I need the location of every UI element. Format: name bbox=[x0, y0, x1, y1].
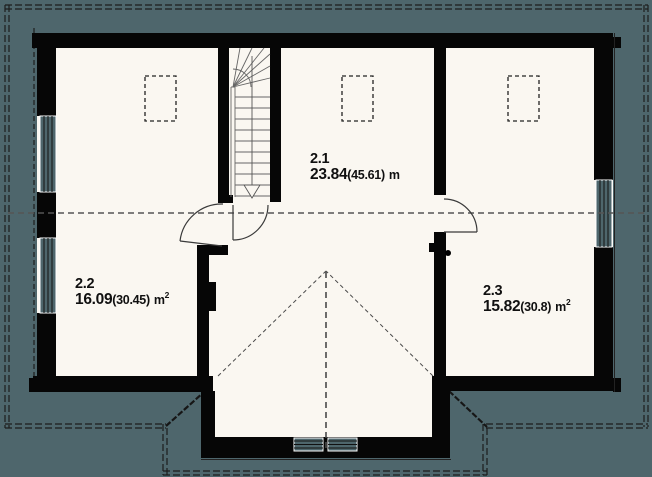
room-number: 2.3 bbox=[483, 283, 502, 299]
dormer-wall-right bbox=[432, 376, 450, 458]
room-number: 2.2 bbox=[75, 276, 94, 292]
window-dormer-left bbox=[294, 438, 323, 451]
exterior-wall-right-lower bbox=[594, 247, 613, 391]
room-area: 15.82 bbox=[483, 298, 520, 315]
exterior-wall-right-upper bbox=[594, 35, 613, 180]
window-dormer-right bbox=[328, 438, 357, 451]
room-area-secondary: (30.8) bbox=[520, 300, 551, 314]
partition-wall-room23-lower bbox=[434, 232, 446, 376]
room-area-unit: m bbox=[555, 300, 566, 314]
corner-notch-bottom-left bbox=[29, 378, 37, 392]
room-area-unit-sup: 2 bbox=[566, 297, 571, 307]
wall-nub bbox=[429, 243, 434, 252]
room-area-unit: m bbox=[154, 293, 165, 307]
svg-text:15.82(30.8)m2: 15.82(30.8)m2 bbox=[483, 297, 571, 315]
exterior-wall-bottom-left bbox=[33, 376, 213, 392]
partition-wall-room23-upper bbox=[434, 48, 446, 195]
room-number: 2.1 bbox=[310, 151, 329, 167]
room-area: 23.84 bbox=[310, 166, 348, 183]
svg-text:16.09(30.45)m2: 16.09(30.45)m2 bbox=[75, 290, 170, 308]
door-stop-dot bbox=[445, 250, 451, 256]
room-area-unit: m bbox=[389, 168, 400, 182]
exterior-wall-bottom-right bbox=[433, 376, 613, 391]
window-left-upper bbox=[40, 116, 56, 192]
partition-wall-room22-stub bbox=[197, 245, 228, 255]
floor-plan-drawing: 2.1 23.84(45.61)m 2.2 16.09(30.45)m2 2.3… bbox=[0, 0, 652, 477]
room-area-secondary: (30.45) bbox=[112, 293, 150, 307]
room-area: 16.09 bbox=[75, 291, 113, 308]
room-area-unit-sup: 2 bbox=[165, 290, 170, 300]
exterior-wall-left-middle bbox=[37, 192, 56, 238]
floor-plan-canvas: 2.1 23.84(45.61)m 2.2 16.09(30.45)m2 2.3… bbox=[0, 0, 652, 477]
room-area-secondary: (45.61) bbox=[347, 168, 385, 182]
partition-wall-room22 bbox=[197, 255, 209, 376]
stairwell-wall-right bbox=[270, 48, 281, 202]
stairwell-wall-left bbox=[218, 48, 229, 198]
exterior-wall-top bbox=[32, 33, 613, 48]
exterior-wall-left-upper bbox=[37, 33, 56, 116]
chimney-block bbox=[204, 282, 216, 311]
window-left-lower bbox=[40, 238, 56, 313]
